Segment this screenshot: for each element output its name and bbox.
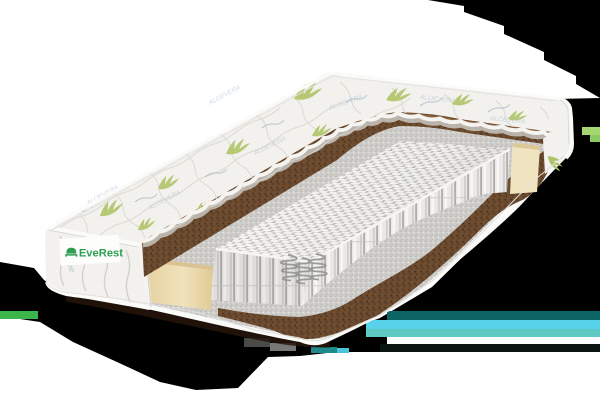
svg-text:EveRest: EveRest [79,248,123,260]
